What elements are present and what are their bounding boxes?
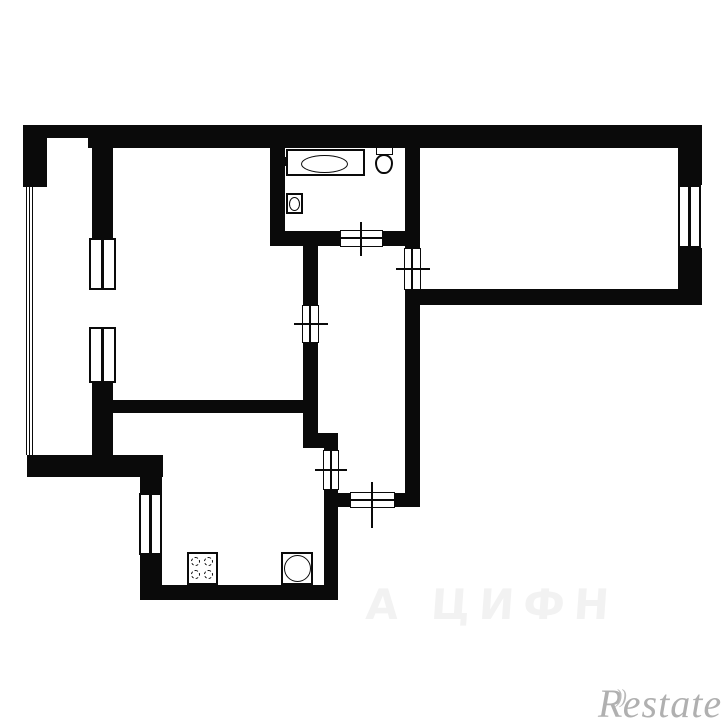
kitchen-sink-bowl xyxy=(284,555,311,582)
window-divider xyxy=(688,187,691,246)
window xyxy=(89,238,116,290)
window xyxy=(89,327,116,383)
door-cross-line xyxy=(371,482,373,528)
door-cross-line xyxy=(294,323,328,325)
door-cross-line xyxy=(338,237,384,239)
window-divider xyxy=(101,329,104,381)
wall xyxy=(678,125,702,185)
washbasin-bowl xyxy=(289,197,300,211)
washbasin-fixture xyxy=(286,193,303,214)
balcony-line xyxy=(26,187,27,455)
wall xyxy=(303,245,318,448)
stove-burner xyxy=(204,570,213,579)
door-cross-line xyxy=(348,499,397,501)
bathtub-fixture xyxy=(286,149,365,176)
bathtub-basin xyxy=(301,155,348,173)
wall xyxy=(27,455,163,477)
watermark-restate-rest: estate xyxy=(623,681,722,725)
door-cross-line xyxy=(309,303,311,345)
wall xyxy=(140,555,162,586)
balcony-line xyxy=(29,187,30,455)
stove-burner xyxy=(204,557,213,566)
watermark-restate: R))estate xyxy=(598,680,722,725)
toilet-bowl-fixture xyxy=(375,154,393,174)
window-divider xyxy=(101,240,104,288)
watermark-faint-text: А ЦИФН xyxy=(364,580,619,629)
door-cross-line xyxy=(360,222,362,256)
wall xyxy=(140,585,338,600)
door-cross-line xyxy=(396,268,430,270)
kitchen-sink-fixture xyxy=(281,552,313,585)
wall xyxy=(318,433,338,448)
wall xyxy=(92,138,113,238)
stove-fixture xyxy=(187,552,218,585)
door-cross-line xyxy=(411,246,413,292)
window xyxy=(139,493,162,555)
window-divider xyxy=(149,495,152,553)
window xyxy=(678,185,701,248)
stove-burner xyxy=(191,557,200,566)
wall xyxy=(113,400,303,413)
floor-plan: А ЦИФН R))estate xyxy=(0,0,725,725)
balcony-line xyxy=(32,187,33,455)
wall xyxy=(92,383,113,455)
wall xyxy=(140,477,162,493)
stove-burner xyxy=(191,570,200,579)
wall xyxy=(23,125,47,187)
wall xyxy=(405,145,420,507)
door-cross-line xyxy=(330,448,332,492)
wall xyxy=(88,125,702,148)
wall xyxy=(418,289,702,305)
